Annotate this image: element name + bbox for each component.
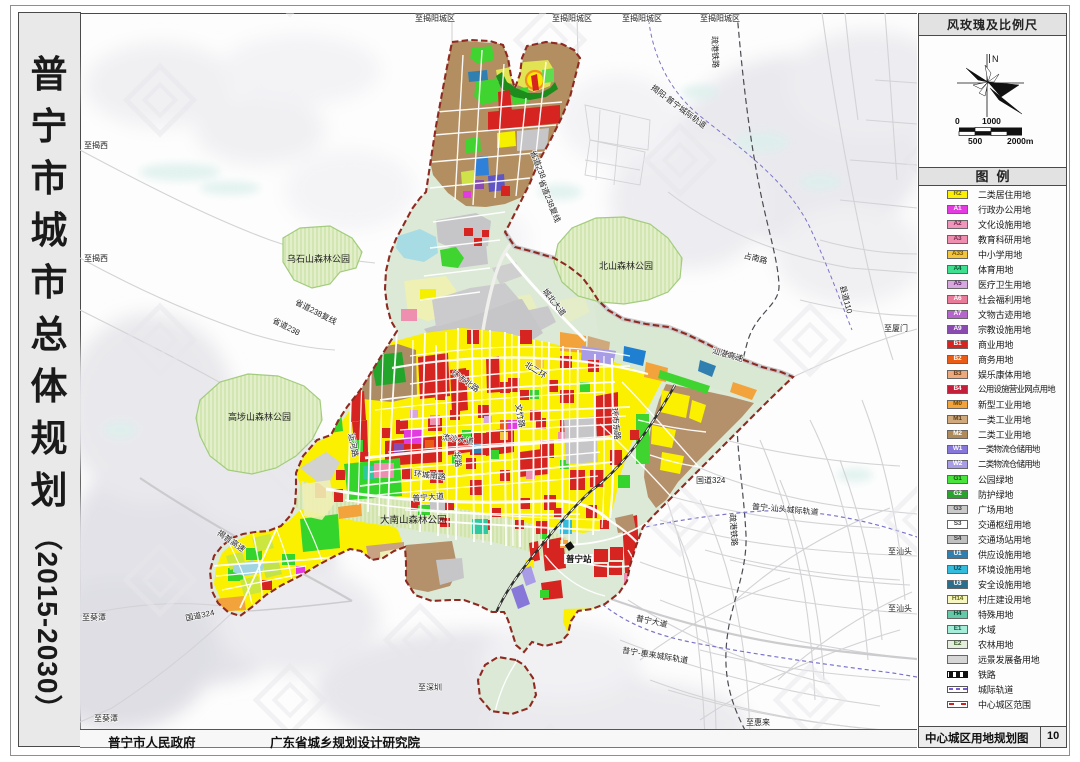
- svg-text:至揭西: 至揭西: [84, 253, 108, 263]
- svg-text:至汕头: 至汕头: [888, 603, 912, 613]
- svg-text:乌石山森林公园: 乌石山森林公园: [287, 253, 350, 264]
- svg-text:至惠来: 至惠来: [746, 717, 770, 727]
- svg-text:普宁站: 普宁站: [566, 554, 592, 564]
- svg-text:高埗山森林公园: 高埗山森林公园: [228, 411, 291, 422]
- svg-text:至揭阳城区: 至揭阳城区: [552, 13, 592, 23]
- svg-text:北山森林公园: 北山森林公园: [599, 260, 653, 271]
- svg-text:至汕头: 至汕头: [888, 546, 912, 556]
- svg-text:至葵潭: 至葵潭: [82, 612, 106, 622]
- svg-text:至揭西: 至揭西: [84, 140, 108, 150]
- svg-text:至揭阳城区: 至揭阳城区: [700, 13, 740, 23]
- svg-text:国道324: 国道324: [696, 475, 726, 485]
- svg-text:疏港铁路: 疏港铁路: [710, 36, 721, 68]
- svg-text:至深圳: 至深圳: [418, 682, 442, 692]
- svg-text:至厦门: 至厦门: [884, 323, 908, 333]
- svg-text:至葵潭: 至葵潭: [94, 713, 118, 723]
- svg-text:至揭阳城区: 至揭阳城区: [415, 13, 455, 23]
- svg-text:大南山森林公园: 大南山森林公园: [380, 514, 447, 526]
- svg-text:至揭阳城区: 至揭阳城区: [622, 13, 662, 23]
